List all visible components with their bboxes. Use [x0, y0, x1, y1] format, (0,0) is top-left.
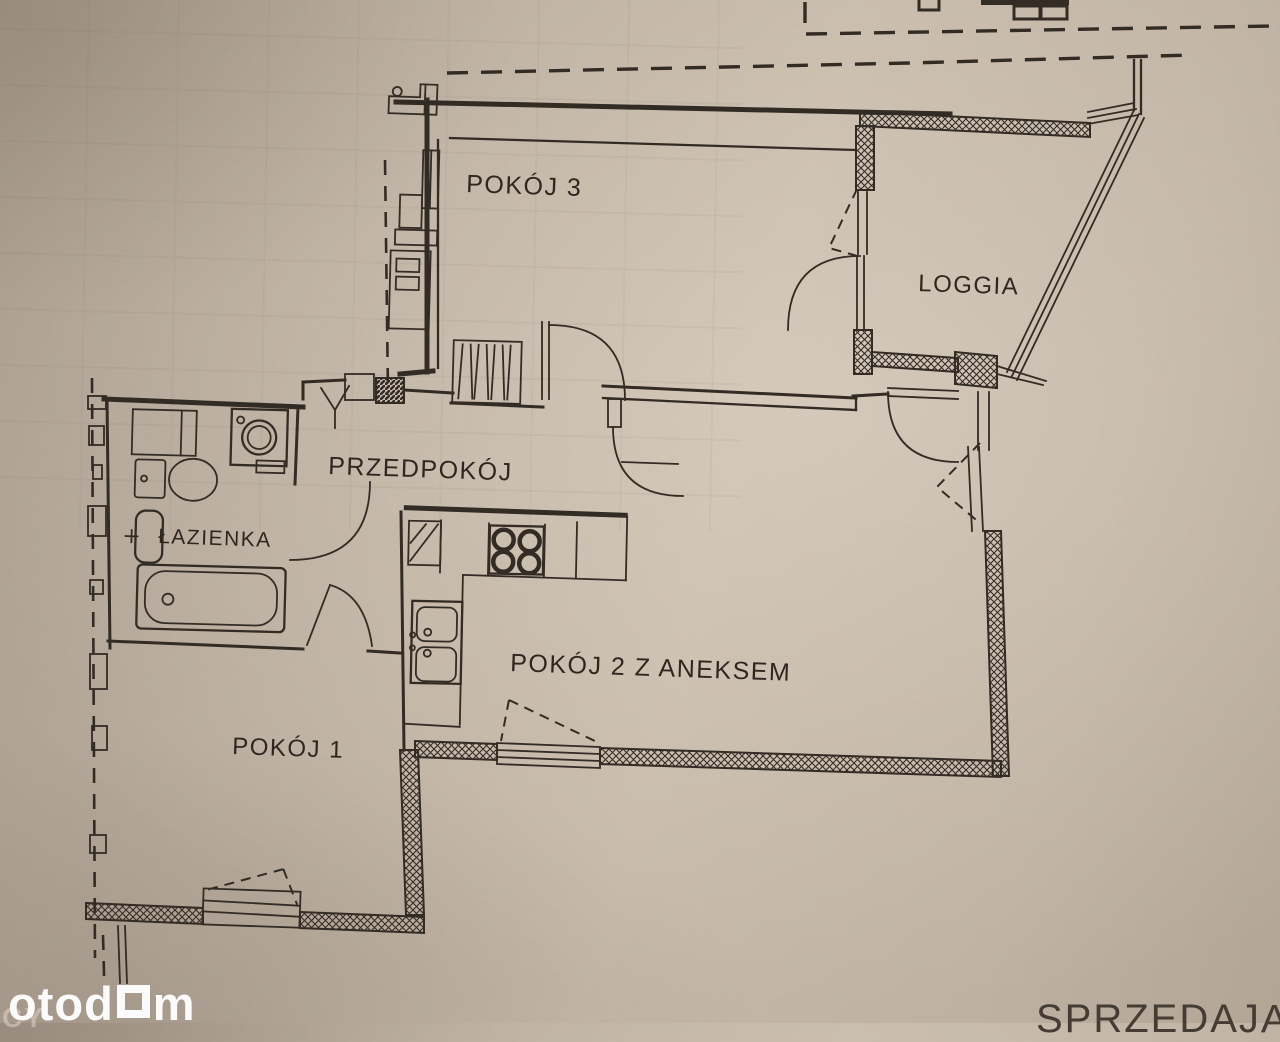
otodom-logo-prefix: otod — [8, 977, 114, 1030]
toilet — [135, 457, 218, 501]
room-label-przedpokoj: PRZEDPOKÓJ — [328, 451, 513, 486]
room-label-pokoj-2: POKÓJ 2 Z ANEKSEM — [510, 648, 792, 687]
washing-machine — [230, 409, 288, 473]
bathroom — [104, 399, 370, 648]
door-pokoj2-entry — [608, 399, 683, 496]
room-label-loggia: LOGGIA — [918, 270, 1020, 301]
floor-plan-drawing: POKÓJ 3 LOGGIA PRZEDPOKÓJ ŁAZIENKA POKÓJ… — [0, 0, 1280, 1023]
przedpokoj-walls — [603, 386, 856, 410]
room-label-pokoj-3: POKÓJ 3 — [466, 169, 583, 202]
window-pokoj2 — [497, 700, 600, 768]
stove — [489, 525, 544, 574]
otodom-logo-square-icon — [117, 985, 150, 1018]
kitchen-sink — [409, 601, 462, 684]
kitchen-annex — [402, 508, 628, 731]
pokoj2-walls — [415, 531, 1009, 777]
bathroom-cabinet — [132, 409, 197, 456]
door-pokoj2-loggia — [853, 388, 989, 531]
room-label-lazienka: ŁAZIENKA — [158, 525, 272, 552]
door-arc-bathroom — [290, 482, 370, 560]
wardrobe — [452, 340, 522, 404]
door-pokoj3-loggia — [788, 189, 864, 330]
shaft-and-antenna — [303, 374, 453, 428]
dish-drainer — [408, 521, 441, 566]
window-pokoj1 — [202, 866, 301, 927]
floor-plan-photo: { "page": {"type": "apartment-floor-plan… — [0, 0, 1280, 1023]
seller-caption: SPRZEDAJĄCY — [1036, 997, 1280, 1042]
utility-riser-fixtures — [389, 149, 440, 329]
loggia-railing — [1007, 60, 1144, 380]
bathtub — [136, 564, 286, 632]
door-pokoj1 — [307, 585, 372, 646]
room-label-pokoj-1: POKÓJ 1 — [232, 733, 345, 764]
site-boundary-dashes — [447, 0, 1272, 73]
entry-fixture — [388, 83, 437, 115]
otodom-watermark-logo: otodm — [8, 980, 196, 1027]
neighbor-unit-fragment — [919, 0, 1069, 19]
tv-antenna-icon — [321, 386, 349, 428]
otodom-logo-suffix: m — [153, 977, 196, 1030]
